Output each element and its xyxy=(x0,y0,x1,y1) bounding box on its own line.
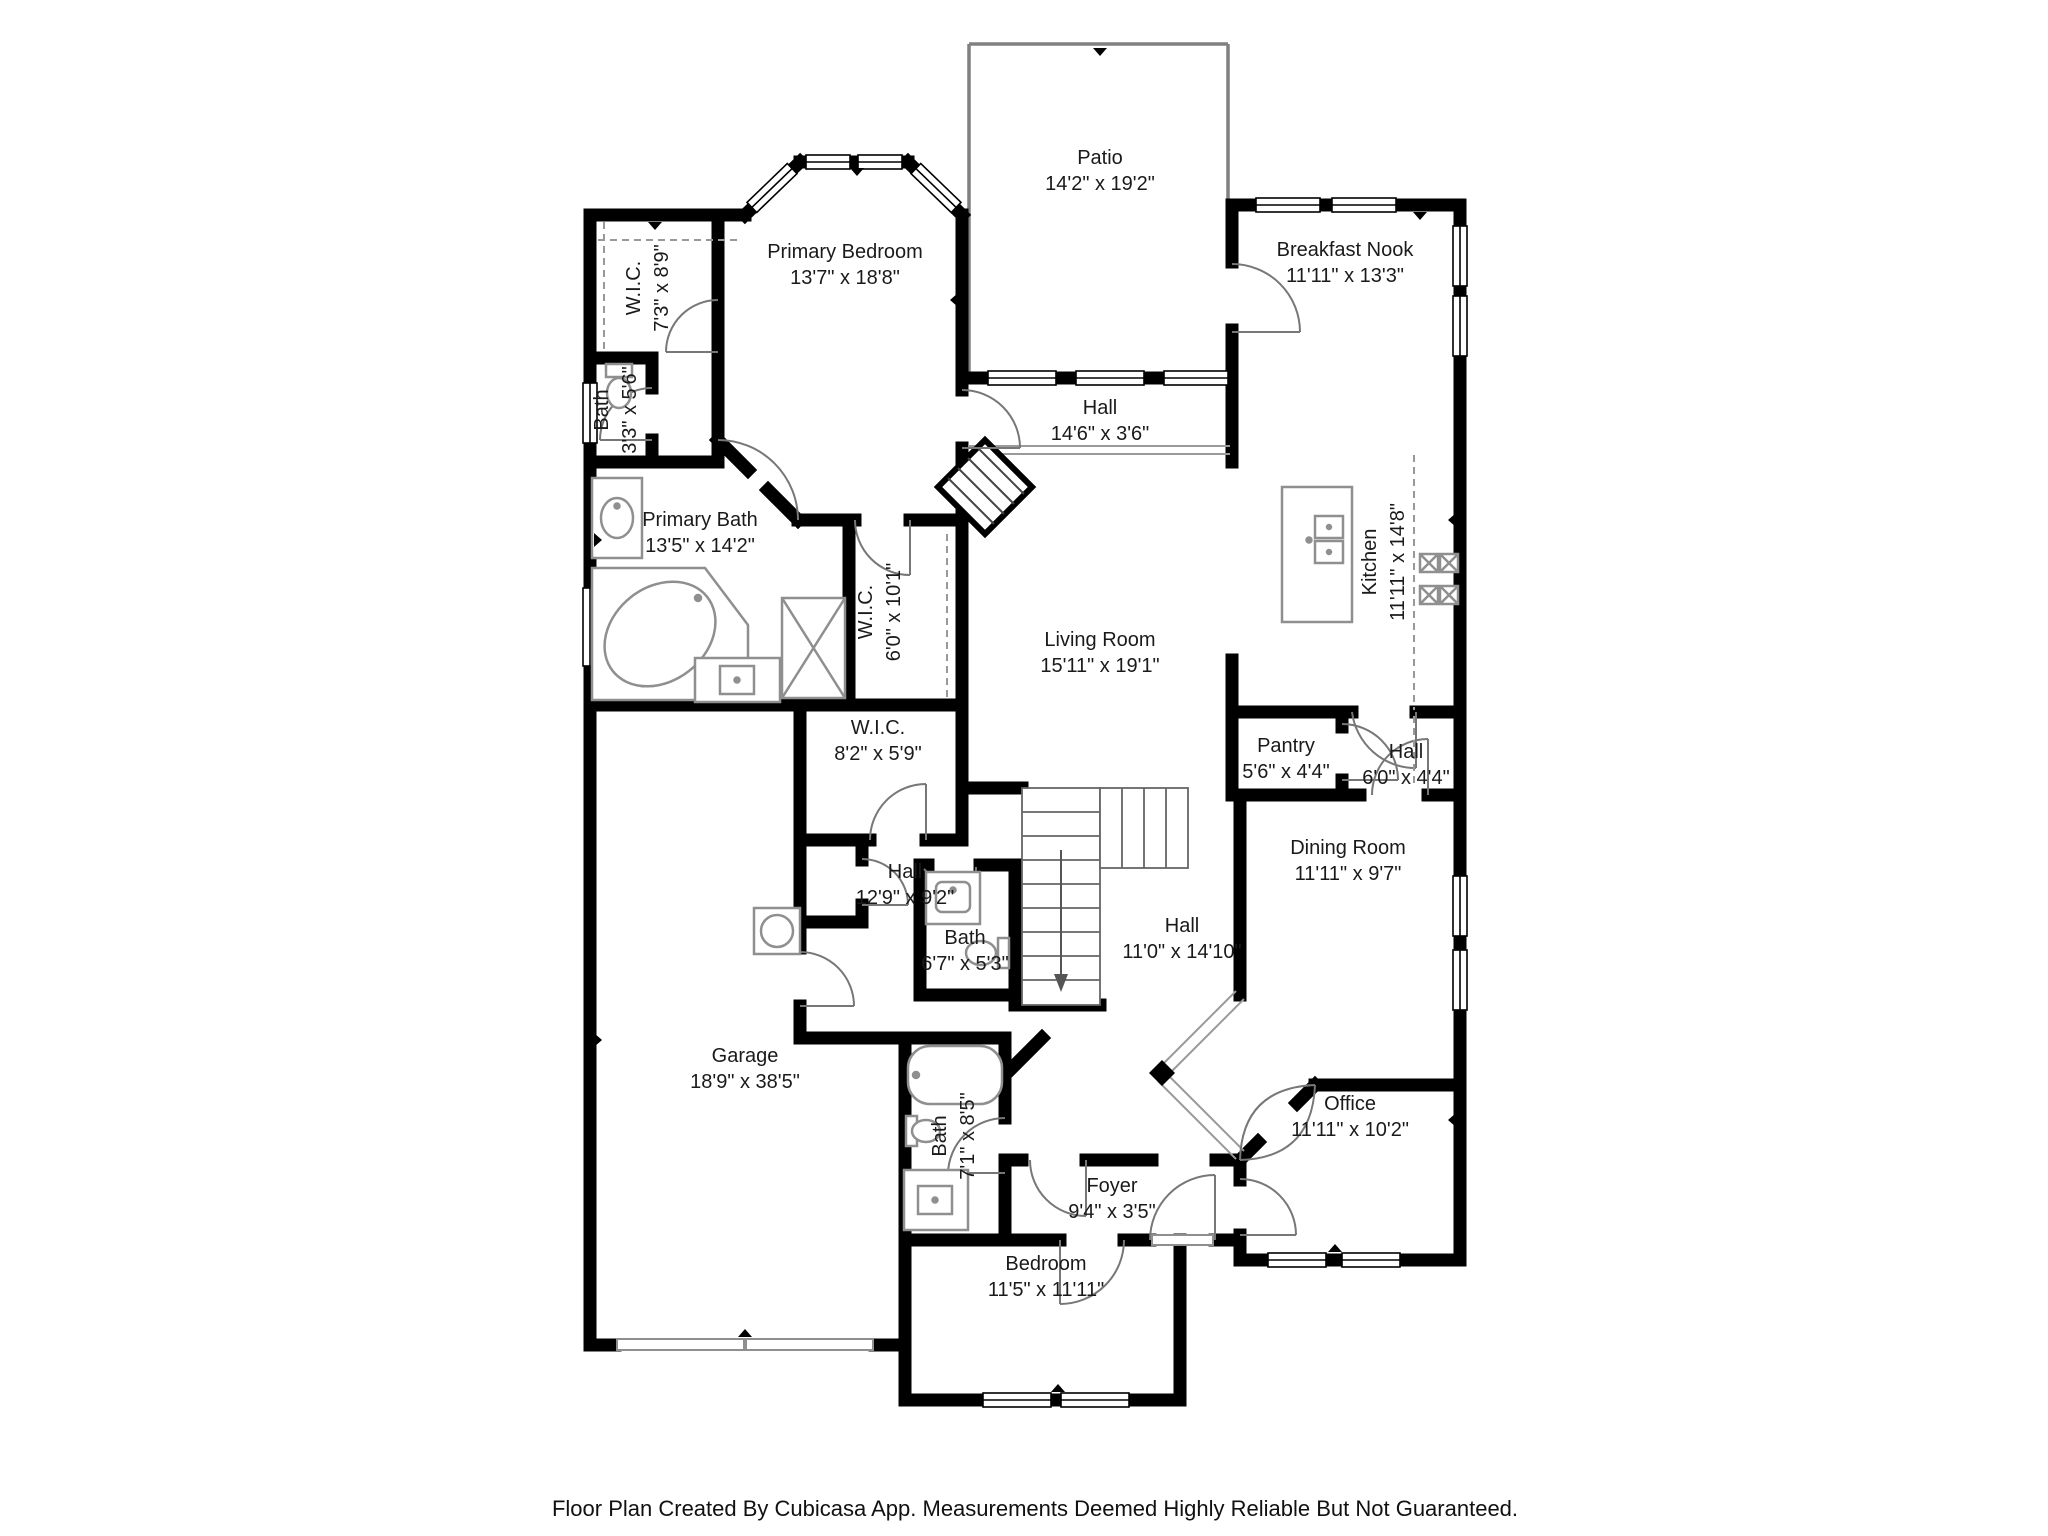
label-pantry-dims: 5'6" x 4'4" xyxy=(1242,761,1329,783)
window-icon xyxy=(1268,1253,1326,1267)
label-dining-room-name: Dining Room xyxy=(1290,837,1406,859)
water-heater-icon xyxy=(754,908,800,954)
window-icon xyxy=(1164,371,1228,385)
door-arc xyxy=(870,784,926,840)
front-door-threshold xyxy=(1152,1235,1213,1245)
label-wic3-dims: 8'2" x 5'9" xyxy=(834,743,921,765)
window-icon xyxy=(1453,226,1467,286)
label-primary-bath-name: Primary Bath xyxy=(642,509,758,531)
vanity-sink-icon xyxy=(695,658,780,702)
label-kitchen-name: Kitchen xyxy=(1359,529,1381,596)
door-arc xyxy=(1150,1175,1215,1240)
label-bedroom-dims: 11'5" x 11'11" xyxy=(988,1279,1104,1301)
stove-icon xyxy=(1420,554,1458,604)
label-bath1-name: Bath xyxy=(591,389,613,430)
opening-junction-post xyxy=(1149,1060,1175,1086)
label-garage-name: Garage xyxy=(712,1045,779,1067)
label-hall-mid-dims: 12'9" x 9'2" xyxy=(856,887,955,909)
label-hall-top-name: Hall xyxy=(1083,397,1117,419)
label-bath1-dims: 3'3" x 5'6" xyxy=(619,366,641,453)
label-foyer-dims: 9'4" x 3'5" xyxy=(1068,1201,1155,1223)
label-living-room-name: Living Room xyxy=(1044,629,1155,651)
label-wic3-name: W.I.C. xyxy=(851,717,905,739)
label-bath2-dims: 6'7" x 5'3" xyxy=(921,953,1008,975)
garage-door xyxy=(617,1339,744,1350)
label-living-room-dims: 15'11" x 19'1" xyxy=(1040,655,1159,677)
label-hall-center-name: Hall xyxy=(1165,915,1199,937)
label-hall-center-dims: 11'0" x 14'10" xyxy=(1122,941,1241,963)
label-breakfast-nook-name: Breakfast Nook xyxy=(1277,239,1415,261)
label-kitchen-dims: 11'11" x 14'8" xyxy=(1387,503,1409,621)
caption: Floor Plan Created By Cubicasa App. Meas… xyxy=(552,1496,1518,1521)
garage-door xyxy=(746,1339,873,1350)
window-icon xyxy=(1453,950,1467,1010)
label-bath3-dims: 7'1" x 8'5" xyxy=(957,1092,979,1179)
label-primary-bath-dims: 13'5" x 14'2" xyxy=(645,535,755,557)
label-primary-bedroom-dims: 13'7" x 18'8" xyxy=(790,267,900,289)
window-icon xyxy=(1342,1253,1400,1267)
floor-plan-page: Patio 14'2" x 19'2" Primary Bedroom 13'7… xyxy=(0,0,2048,1536)
window-icon xyxy=(1076,371,1144,385)
staircase xyxy=(1022,788,1188,1005)
label-bath2-name: Bath xyxy=(944,927,985,949)
window-icon xyxy=(1453,876,1467,936)
window-icon xyxy=(1453,296,1467,356)
label-hall-top-dims: 14'6" x 3'6" xyxy=(1051,423,1150,445)
door-arc xyxy=(962,390,1020,448)
window-icon xyxy=(1256,198,1320,212)
label-foyer-name: Foyer xyxy=(1086,1175,1137,1197)
floor-plan-svg: Patio 14'2" x 19'2" Primary Bedroom 13'7… xyxy=(0,0,2048,1536)
label-bedroom-name: Bedroom xyxy=(1005,1253,1086,1275)
window-icon xyxy=(858,155,902,169)
window-icon xyxy=(747,164,797,213)
door-arc xyxy=(800,952,854,1006)
label-office-dims: 11'11" x 10'2" xyxy=(1291,1119,1409,1141)
label-hall-pantry-dims: 6'0" x 4'4" xyxy=(1362,767,1449,789)
label-pantry-name: Pantry xyxy=(1257,735,1315,757)
label-garage-dims: 18'9" x 38'5" xyxy=(690,1071,800,1093)
shower-icon xyxy=(782,598,845,698)
vanity-sink-icon xyxy=(592,478,642,558)
window-icon xyxy=(911,164,961,213)
label-dining-room-dims: 11'11" x 9'7" xyxy=(1295,863,1402,885)
label-primary-bedroom-name: Primary Bedroom xyxy=(767,241,923,263)
label-patio-dims: 14'2" x 19'2" xyxy=(1045,173,1155,195)
label-hall-mid-name: Hall xyxy=(888,861,922,883)
patio-outline xyxy=(969,44,1228,374)
label-hall-pantry-name: Hall xyxy=(1389,741,1423,763)
door-arc xyxy=(666,300,718,352)
label-bath3-name: Bath xyxy=(929,1115,951,1156)
door-arc xyxy=(1240,1179,1296,1235)
window-icon xyxy=(1061,1393,1129,1407)
label-wic2-dims: 6'0" x 10'1" xyxy=(883,563,905,662)
label-patio-name: Patio xyxy=(1077,147,1123,169)
bathtub-icon xyxy=(908,1046,1002,1104)
window-icon xyxy=(983,1393,1051,1407)
label-wic1-dims: 7'3" x 8'9" xyxy=(651,244,673,331)
window-icon xyxy=(806,155,850,169)
label-wic1-name: W.I.C. xyxy=(623,261,645,315)
label-office-name: Office xyxy=(1324,1093,1376,1115)
label-wic2-name: W.I.C. xyxy=(855,585,877,639)
label-breakfast-nook-dims: 11'11" x 13'3" xyxy=(1286,265,1404,287)
window-icon xyxy=(988,371,1056,385)
kitchen-island xyxy=(1282,487,1352,622)
window-icon xyxy=(1332,198,1396,212)
